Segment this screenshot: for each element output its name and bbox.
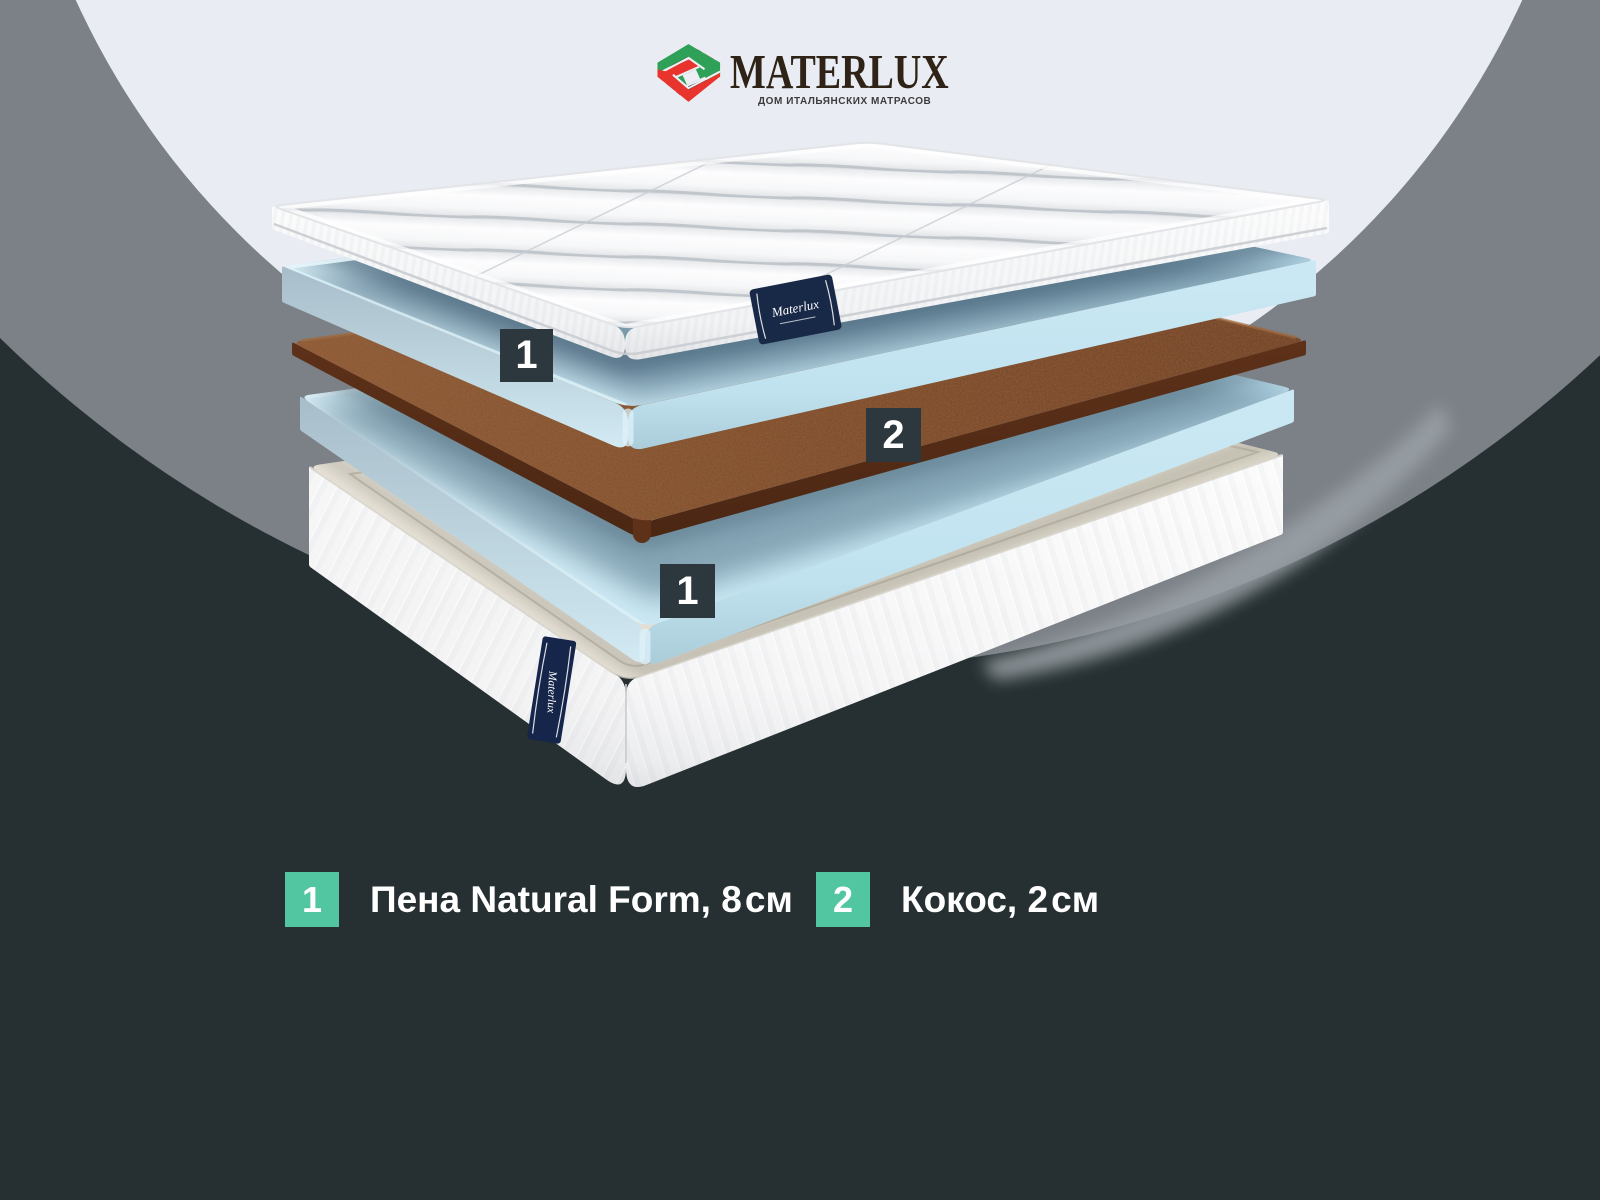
svg-text:1: 1 — [515, 333, 537, 377]
svg-text:Materlux: Materlux — [545, 670, 559, 714]
svg-text:1: 1 — [676, 569, 698, 613]
svg-text:2: 2 — [882, 413, 904, 457]
